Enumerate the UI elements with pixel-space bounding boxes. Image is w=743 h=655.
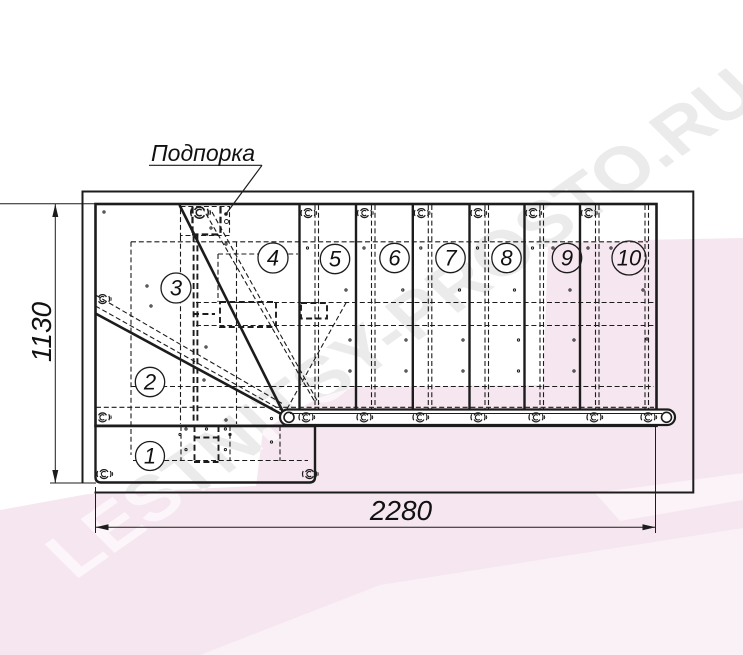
- svg-text:2: 2: [143, 370, 156, 395]
- svg-text:4: 4: [267, 246, 279, 271]
- svg-text:7: 7: [444, 246, 457, 271]
- svg-text:8: 8: [500, 246, 513, 271]
- svg-text:2280: 2280: [369, 495, 433, 526]
- svg-text:1: 1: [144, 444, 156, 469]
- svg-text:1130: 1130: [26, 301, 57, 362]
- svg-text:6: 6: [388, 246, 401, 271]
- svg-text:10: 10: [617, 246, 642, 271]
- svg-text:3: 3: [170, 276, 183, 301]
- svg-text:5: 5: [329, 247, 342, 272]
- svg-text:9: 9: [561, 246, 573, 271]
- svg-text:Подпорка: Подпорка: [151, 140, 255, 166]
